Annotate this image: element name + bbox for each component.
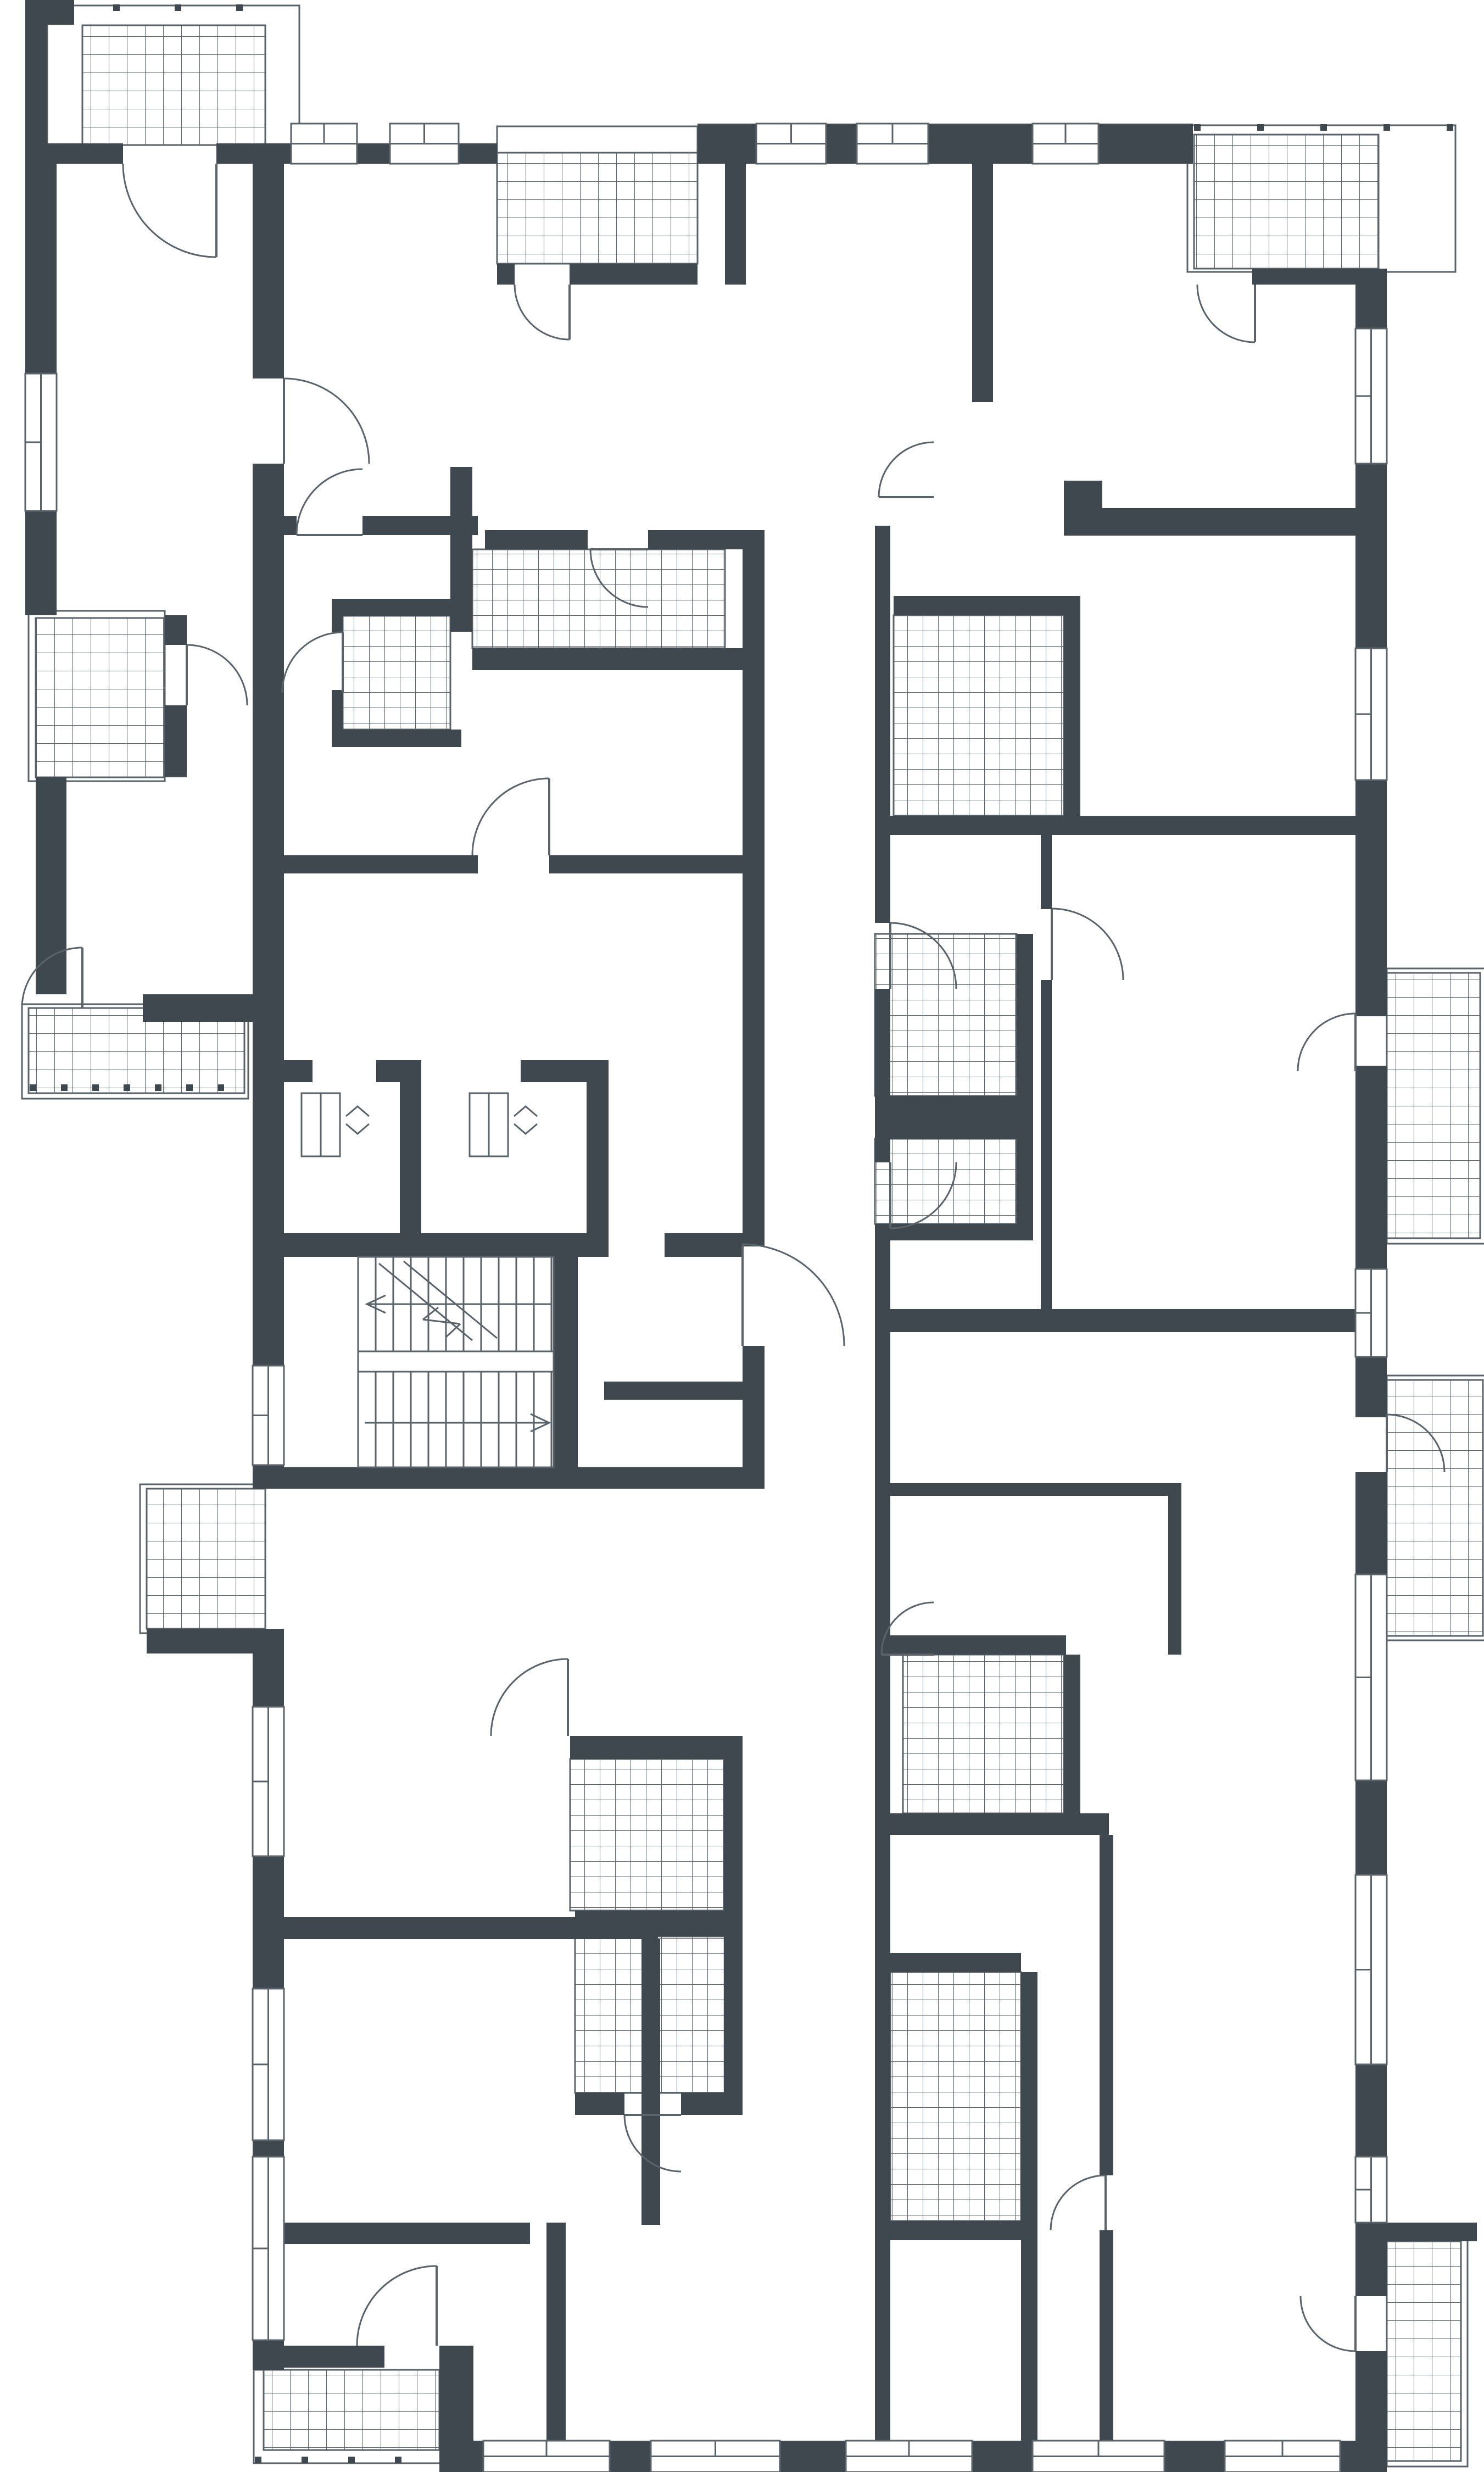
balcony-hatch <box>82 25 265 145</box>
railing-post <box>348 2457 355 2463</box>
balcony-hatch <box>1387 2241 1461 2461</box>
wall-segment <box>332 730 461 747</box>
railing-post <box>124 1084 130 1091</box>
stair-outline <box>358 1257 554 1467</box>
railing-post <box>1320 124 1327 131</box>
railing-post <box>395 2457 401 2463</box>
wall-segment <box>1064 481 1102 508</box>
window <box>390 124 459 164</box>
wall-segment <box>570 264 698 285</box>
wall-segment <box>724 1736 743 2115</box>
wall-segment <box>587 1060 609 1233</box>
wet-room-hatch <box>570 1759 724 1911</box>
staircase <box>358 1257 554 1467</box>
wall-segment <box>875 526 890 923</box>
wall-segment <box>485 530 588 549</box>
wet-room-hatch <box>875 934 1017 1096</box>
railing-post <box>1447 124 1453 131</box>
wall-segment <box>890 1635 1066 1655</box>
wall-segment <box>376 1060 421 1082</box>
wall-segment <box>1064 1655 1080 1835</box>
wall-segment <box>36 777 66 994</box>
wet-room-hatch <box>343 616 450 730</box>
wet-room-hatch <box>903 1655 1064 1813</box>
wall-segment <box>253 1467 743 1489</box>
wall-segment <box>253 1233 609 1257</box>
railing-post <box>92 1084 99 1091</box>
wall-segment <box>972 164 993 402</box>
railing-post <box>175 4 181 11</box>
window <box>1355 1269 1387 1357</box>
wall-segment <box>1100 2230 1113 2441</box>
wall-segment <box>472 648 743 670</box>
wall-segment <box>890 816 1355 835</box>
wall-segment <box>1100 1835 1113 2175</box>
wall-segment <box>332 599 343 632</box>
wall-segment <box>698 124 758 164</box>
window <box>1225 2441 1340 2472</box>
wall-segment <box>439 2346 473 2442</box>
wall-segment <box>450 467 472 632</box>
wall-segment <box>1064 596 1080 835</box>
wall-segment <box>875 1096 1033 1139</box>
railing-post <box>113 4 120 11</box>
wall-segment <box>875 1496 890 1835</box>
wall-segment <box>546 2223 566 2441</box>
window <box>253 1707 284 1856</box>
balcony-right-middle <box>1387 1376 1484 1640</box>
wall-segment <box>1168 1496 1181 1655</box>
wall-segment <box>30 0 74 25</box>
balcony-hatch <box>36 618 165 777</box>
wall-segment <box>1355 2351 1387 2442</box>
window <box>483 2441 610 2472</box>
window <box>291 124 357 164</box>
wall-segment <box>1041 835 1052 909</box>
wall-segment <box>875 1224 1033 1240</box>
window <box>1355 329 1387 464</box>
wall-segment <box>400 1082 421 1233</box>
wall-segment <box>165 705 187 777</box>
wall-segment <box>1021 1972 1037 2441</box>
railing-post <box>155 1084 161 1091</box>
wall-segment <box>554 1257 578 1467</box>
wall-segment <box>890 1309 1355 1332</box>
balcony-hatch <box>1387 973 1480 1238</box>
wall-segment <box>497 264 515 285</box>
railing-post <box>30 1084 36 1091</box>
balcony-hatch <box>497 153 698 264</box>
window <box>253 1366 284 1465</box>
window <box>846 2441 972 2472</box>
wall-segment <box>641 1939 660 2225</box>
wall-segment <box>284 2223 530 2244</box>
wet-room-hatch <box>472 549 725 648</box>
loggia-left-upper <box>29 611 165 781</box>
balcony-hatch <box>1387 1380 1483 1636</box>
wall-segment <box>253 2346 384 2368</box>
wall-segment <box>253 164 284 378</box>
window <box>1033 124 1098 164</box>
window <box>253 1989 284 2140</box>
wall-segment <box>570 1736 743 1759</box>
wall-segment <box>890 2221 1021 2240</box>
window <box>253 2157 284 2340</box>
railing-post <box>186 1084 193 1091</box>
railing-post <box>217 1084 224 1091</box>
wall-segment <box>1098 124 1193 164</box>
wet-room-hatch <box>890 1972 1021 2221</box>
window <box>1355 2157 1387 2223</box>
wall-segment <box>25 143 123 164</box>
wall-segment <box>147 1629 253 1653</box>
wall-segment <box>875 1228 890 1309</box>
wall-segment <box>549 855 743 873</box>
window <box>756 124 826 164</box>
balcony-bottom-left <box>254 2370 446 2463</box>
balcony-hatch <box>1194 135 1379 269</box>
railing-post <box>302 2457 308 2463</box>
window <box>1033 2441 1164 2472</box>
wall-segment <box>875 1813 1109 1835</box>
wall-segment <box>743 530 765 1246</box>
window <box>1355 1875 1387 2064</box>
wall-segment <box>1017 934 1033 1224</box>
balcony-hatch <box>147 1489 265 1629</box>
window <box>25 374 57 511</box>
wall-segment <box>1355 1066 1387 1417</box>
window <box>857 124 928 164</box>
railing-post <box>1257 124 1264 131</box>
balcony-bottom-right <box>1387 2237 1468 2467</box>
balcony-top-left <box>47 5 299 145</box>
wall-segment <box>665 1233 743 1257</box>
wall-segment <box>928 124 1034 164</box>
wall-segment <box>272 1060 313 1082</box>
wall-segment <box>890 1953 1021 1972</box>
wall-segment <box>284 516 297 535</box>
railing-post <box>1194 124 1201 131</box>
wall-segment <box>875 1309 890 1496</box>
wall-segment <box>165 615 187 645</box>
window <box>651 2441 780 2472</box>
wall-segment <box>575 2093 624 2115</box>
wall-segment <box>1064 508 1355 536</box>
wall-segment <box>1387 2223 1477 2241</box>
wall-segment <box>894 596 1064 615</box>
wall-segment <box>743 1346 765 1489</box>
wall-segment <box>253 464 284 1148</box>
floor-plan-page <box>0 0 1484 2472</box>
railing-post <box>255 2457 261 2463</box>
wall-segment <box>284 855 478 873</box>
balcony-left-lower <box>140 1484 265 1633</box>
wall-segment <box>875 1835 890 2441</box>
wall-segment <box>1355 2241 1387 2296</box>
wall-segment <box>826 124 859 164</box>
wall-segment <box>890 1483 1181 1496</box>
wall-segment <box>284 1917 658 1939</box>
wall-segment <box>725 164 746 285</box>
wet-room-hatch <box>875 1139 1017 1224</box>
railing-post <box>1383 124 1390 131</box>
wall-segment <box>648 530 743 549</box>
balcony-right-upper <box>1387 968 1484 1244</box>
wall-segment <box>343 599 450 616</box>
window <box>1355 1574 1387 1780</box>
wall-segment <box>604 1382 743 1400</box>
window <box>1355 648 1387 780</box>
wet-room-hatch <box>894 615 1064 816</box>
railing-post <box>236 4 243 11</box>
railing-post <box>61 1084 68 1091</box>
balcony-hatch <box>264 2370 439 2450</box>
wall-segment <box>1041 980 1052 1309</box>
floor-plan-drawing <box>0 0 1484 2472</box>
